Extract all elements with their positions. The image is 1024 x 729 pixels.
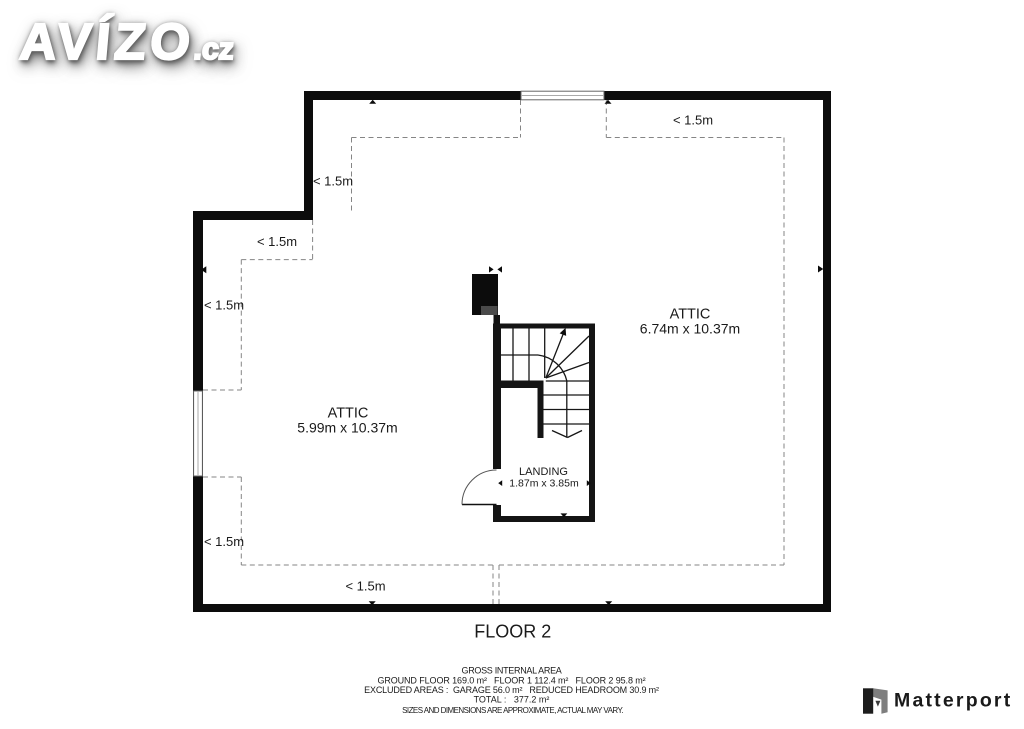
svg-text:5.99m x 10.37m: 5.99m x 10.37m xyxy=(297,420,397,436)
svg-text:< 1.5m: < 1.5m xyxy=(313,174,353,189)
svg-text:< 1.5m: < 1.5m xyxy=(204,534,244,549)
svg-text:SIZES AND DIMENSIONS ARE APPRO: SIZES AND DIMENSIONS ARE APPROXIMATE, AC… xyxy=(402,706,623,715)
svg-text:EXCLUDED AREAS : GARAGE 56.0: EXCLUDED AREAS : GARAGE 56.0 m² REDUCED … xyxy=(364,685,659,695)
svg-text:1.87m x 3.85m: 1.87m x 3.85m xyxy=(509,477,579,489)
svg-text:Matterport: Matterport xyxy=(894,690,1012,712)
svg-text:TOTAL : 377.2 m²: TOTAL : 377.2 m² xyxy=(474,694,550,704)
svg-text:FLOOR 2: FLOOR 2 xyxy=(474,622,551,642)
svg-text:< 1.5m: < 1.5m xyxy=(673,113,713,128)
svg-text:LANDING: LANDING xyxy=(519,466,568,478)
svg-text:< 1.5m: < 1.5m xyxy=(204,298,244,313)
svg-text:< 1.5m: < 1.5m xyxy=(345,579,385,594)
svg-text:GROUND FLOOR 169.0 m² FLOOR: GROUND FLOOR 169.0 m² FLOOR 1 112.4 m² F… xyxy=(377,675,645,685)
svg-text:GROSS INTERNAL AREA: GROSS INTERNAL AREA xyxy=(462,666,562,676)
svg-text:< 1.5m: < 1.5m xyxy=(257,234,297,249)
svg-text:6.74m x 10.37m: 6.74m x 10.37m xyxy=(640,321,740,337)
